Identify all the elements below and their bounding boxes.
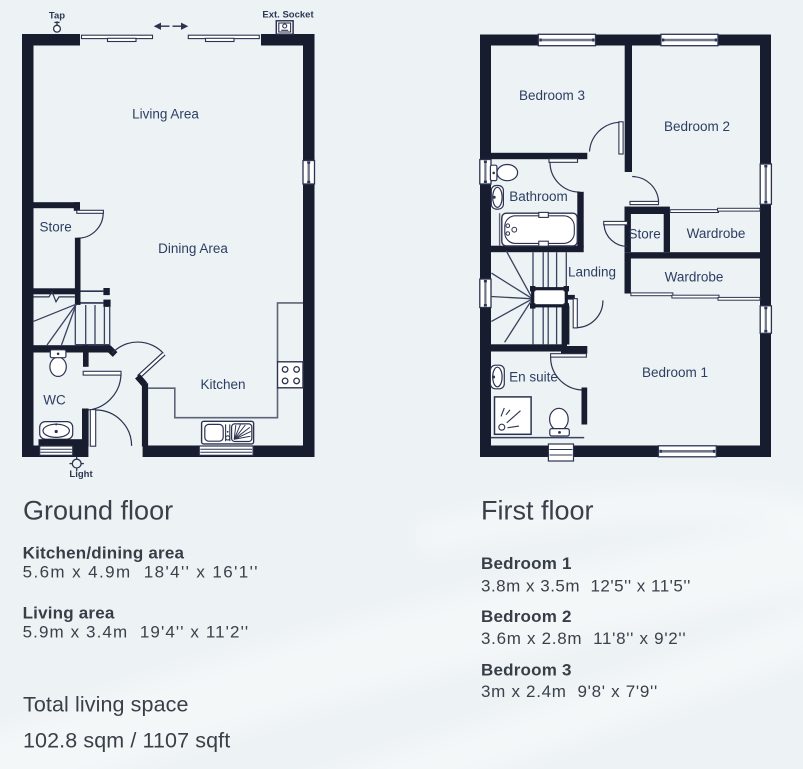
svg-text:Bedroom 1: Bedroom 1 [481, 554, 572, 573]
svg-text:Living area: Living area [23, 604, 115, 623]
svg-text:Kitchen: Kitchen [200, 377, 245, 392]
svg-text:5.9m x 3.4m 19'4'' x 11'2'': 5.9m x 3.4m 19'4'' x 11'2'' [23, 623, 250, 642]
svg-text:Wardrobe: Wardrobe [665, 270, 724, 285]
svg-text:3.6m x 2.8m 11'8'' x 9'2'': 3.6m x 2.8m 11'8'' x 9'2'' [481, 629, 686, 648]
svg-text:En suite: En suite [509, 370, 558, 385]
svg-text:Living Area: Living Area [132, 107, 199, 122]
svg-text:Bedroom 1: Bedroom 1 [642, 365, 708, 380]
svg-text:Bedroom 2: Bedroom 2 [664, 119, 730, 134]
svg-text:Landing: Landing [568, 265, 616, 280]
svg-text:Light: Light [69, 469, 93, 480]
svg-text:3m x 2.4m 9'8' x 7'9'': 3m x 2.4m 9'8' x 7'9'' [481, 682, 658, 701]
svg-text:3.8m x 3.5m 12'5'' x 11'5'': 3.8m x 3.5m 12'5'' x 11'5'' [481, 577, 691, 596]
svg-text:Wardrobe: Wardrobe [687, 226, 746, 241]
svg-text:102.8 sqm / 1107 sqft: 102.8 sqm / 1107 sqft [23, 728, 230, 752]
svg-text:Store: Store [39, 220, 71, 235]
svg-text:Ground floor: Ground floor [23, 496, 173, 526]
svg-text:Ext. Socket: Ext. Socket [262, 10, 314, 21]
svg-text:First floor: First floor [481, 496, 594, 526]
svg-text:Bathroom: Bathroom [509, 189, 568, 204]
svg-text:WC: WC [43, 393, 66, 408]
svg-text:Total living space: Total living space [23, 693, 189, 717]
svg-text:Tap: Tap [49, 11, 65, 22]
svg-text:Bedroom 3: Bedroom 3 [519, 88, 585, 103]
svg-text:Dining Area: Dining Area [158, 241, 228, 256]
svg-text:Bedroom 2: Bedroom 2 [481, 607, 572, 626]
svg-text:5.6m x 4.9m 18'4'' x 16'1'': 5.6m x 4.9m 18'4'' x 16'1'' [23, 562, 259, 581]
svg-text:Kitchen/dining area: Kitchen/dining area [23, 543, 185, 562]
svg-text:Bedroom 3: Bedroom 3 [481, 661, 572, 680]
svg-text:Store: Store [628, 227, 660, 242]
